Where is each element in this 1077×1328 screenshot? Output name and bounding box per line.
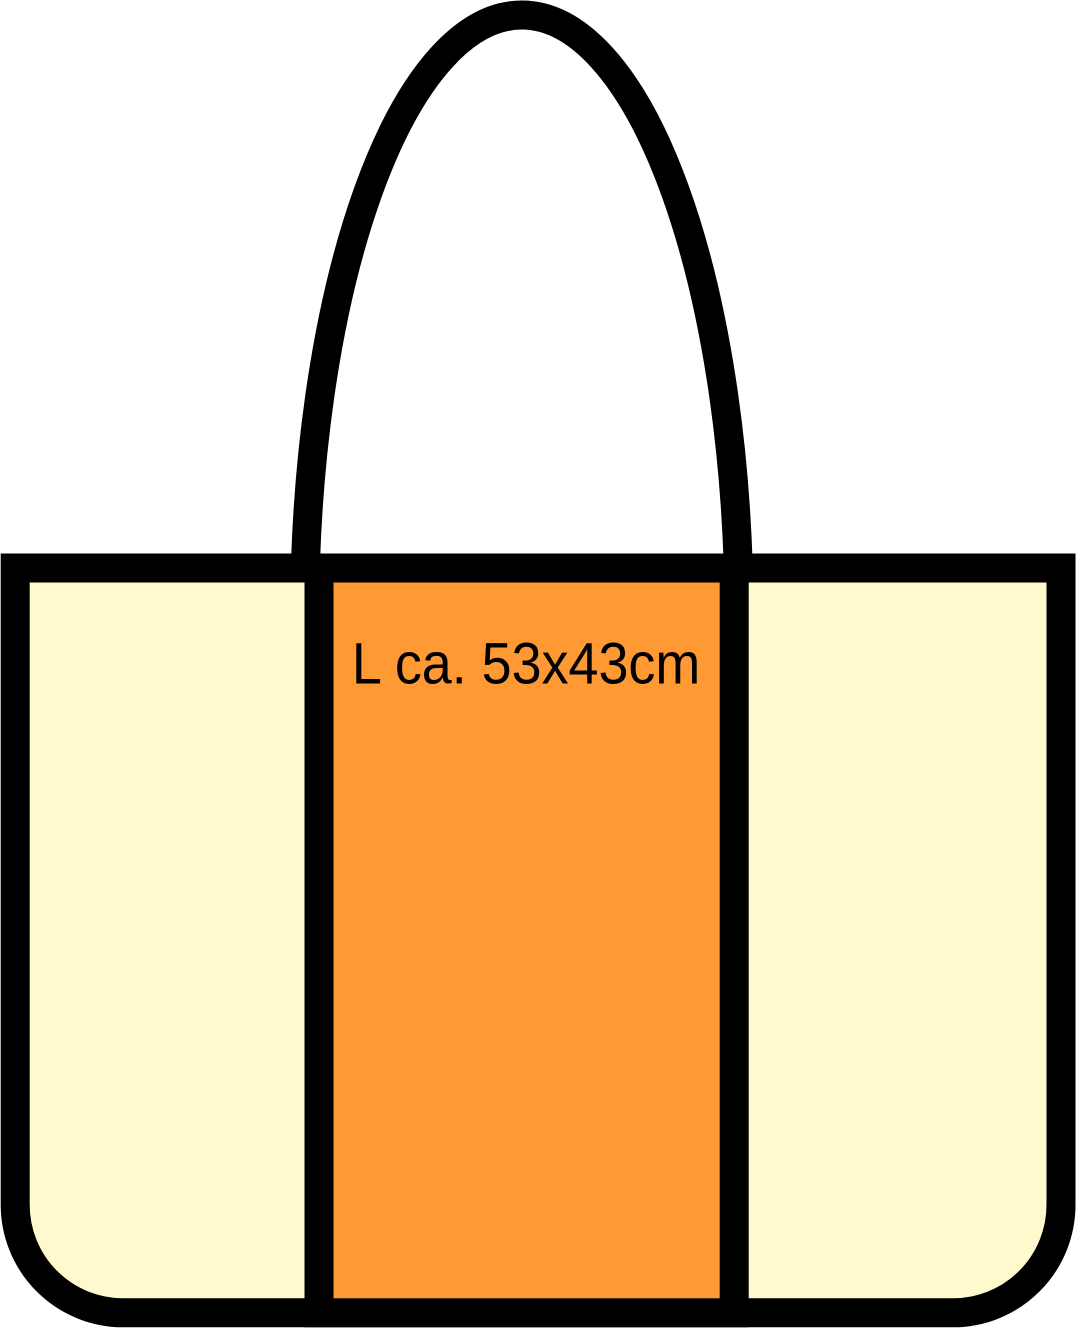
- svg-text:L ca. 53x43cm: L ca. 53x43cm: [352, 630, 700, 696]
